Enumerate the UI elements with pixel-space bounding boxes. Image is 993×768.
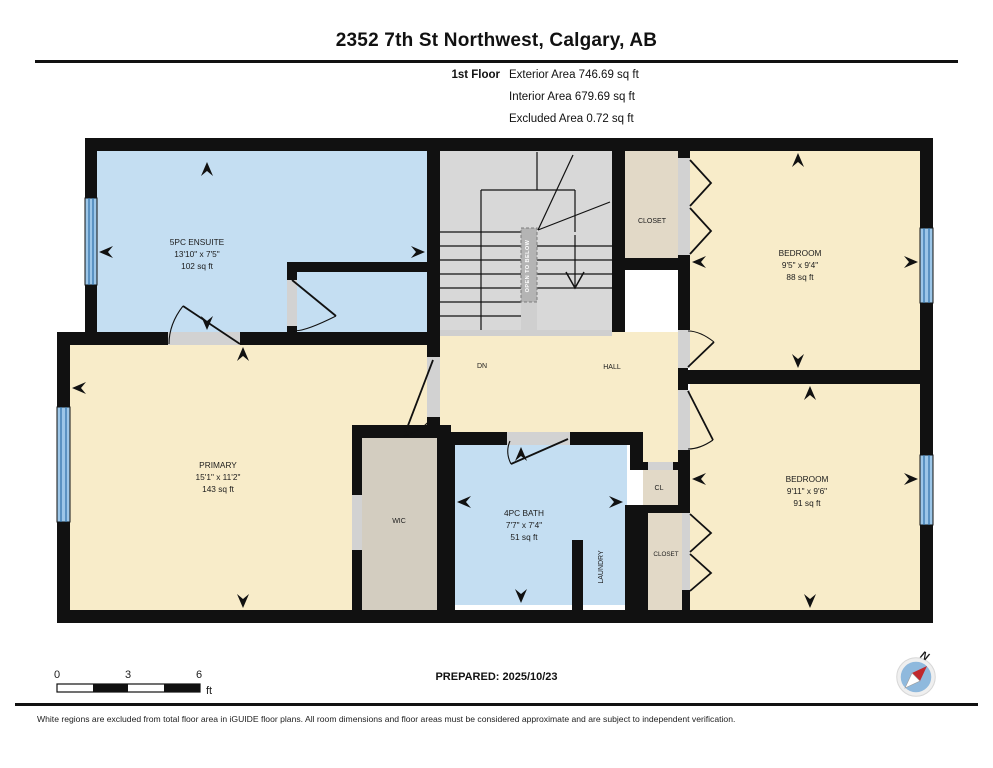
bedroom-bottom-dims: 9'11" x 9'6" — [787, 486, 827, 496]
room-primary-floor — [57, 425, 352, 610]
bedroom-top-name: BEDROOM — [779, 248, 822, 258]
door-opening — [678, 158, 690, 255]
wall — [437, 432, 455, 610]
door-opening — [678, 330, 690, 368]
door-opening — [352, 495, 362, 550]
wall — [427, 332, 440, 357]
hall-floor — [440, 332, 678, 432]
wall — [97, 332, 168, 345]
bath-dims: 7'7" x 7'4" — [506, 520, 542, 530]
wall — [637, 513, 648, 610]
closet-top-label: CLOSET — [638, 218, 667, 225]
bedroom-top-dims: 9'5" x 9'4" — [782, 260, 818, 270]
wall — [427, 151, 440, 332]
wall — [678, 450, 690, 462]
footer-divider — [15, 703, 978, 706]
scale-bar-segment — [164, 684, 200, 692]
wall — [85, 151, 97, 198]
wall — [678, 368, 688, 390]
window — [920, 455, 933, 525]
hall-label: HALL — [603, 364, 621, 371]
closet-top-floor — [625, 151, 678, 258]
primary-area: 143 sq ft — [202, 484, 235, 494]
wall — [570, 432, 630, 445]
wall — [352, 438, 362, 495]
wall — [287, 262, 440, 272]
wall — [455, 432, 507, 445]
laundry-label: LAUNDRY — [598, 550, 605, 584]
bedroom-top-area: 88 sq ft — [786, 272, 814, 282]
door-opening — [648, 462, 673, 470]
ensuite-dims: 13'10" x 7'5" — [174, 249, 220, 259]
wall — [688, 370, 933, 384]
wall — [85, 138, 933, 151]
wall — [57, 345, 70, 407]
room-ensuite-floor — [97, 151, 427, 332]
floor-plan-sheet: 2352 7th St Northwest, Calgary, AB 1st F… — [0, 0, 993, 768]
ensuite-area: 102 sq ft — [181, 261, 214, 271]
wall — [57, 522, 70, 623]
wall — [287, 272, 297, 280]
bath-area: 51 sq ft — [510, 532, 538, 542]
bath-name: 4PC BATH — [504, 508, 544, 518]
wic-label: WIC — [392, 518, 406, 525]
primary-dims: 15'1" x 11'2" — [196, 472, 241, 482]
wall — [240, 332, 440, 345]
bedroom-bottom-name: BEDROOM — [786, 474, 829, 484]
wall — [625, 505, 637, 610]
room-primary-upper-floor — [57, 345, 427, 425]
wall — [920, 151, 933, 228]
window — [920, 228, 933, 303]
ensuite-name: 5PC ENSUITE — [170, 237, 225, 247]
disclaimer-text: White regions are excluded from total fl… — [37, 714, 735, 724]
door-opening — [168, 332, 240, 345]
bedroom-bottom-area: 91 sq ft — [793, 498, 821, 508]
wall — [682, 590, 690, 610]
window — [57, 407, 70, 522]
dn-label: DN — [477, 363, 487, 370]
wall — [57, 610, 933, 623]
room-bedroom-bottom-floor — [690, 384, 920, 610]
wall — [572, 540, 583, 610]
wall — [612, 151, 625, 332]
window — [85, 198, 97, 285]
closet-bottom-label: CLOSET — [653, 551, 678, 558]
wall — [637, 505, 690, 513]
wall — [678, 151, 690, 158]
closet-bottom-floor — [648, 513, 682, 610]
door-opening — [427, 357, 440, 417]
cl-label: CL — [655, 485, 664, 492]
wall — [352, 425, 451, 438]
wall — [352, 550, 362, 610]
open-to-below-label: OPEN TO BELOW — [525, 239, 531, 292]
door-opening — [682, 513, 690, 590]
wall — [678, 255, 690, 330]
floor-plan-drawing: OPEN TO BELOW — [0, 0, 993, 768]
scale-bar-segment — [93, 684, 128, 692]
door-opening — [678, 390, 690, 450]
primary-name: PRIMARY — [199, 460, 237, 470]
wall — [57, 332, 97, 345]
prepared-date: PREPARED: 2025/10/23 — [0, 671, 993, 683]
wall — [85, 285, 97, 332]
wall — [920, 525, 933, 623]
scale-unit: ft — [206, 685, 212, 697]
door-opening — [287, 280, 297, 326]
